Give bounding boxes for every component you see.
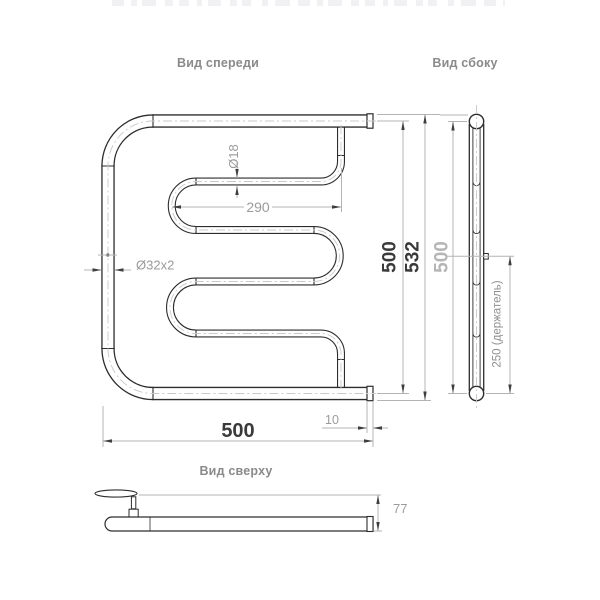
top-view-label: Вид сверху xyxy=(199,464,272,478)
drawing-page: Ø18 290 Ø32x2 500 10 500 532 500 250 (де… xyxy=(0,0,600,600)
dim-pipe-diameter-small: Ø18 xyxy=(226,144,241,169)
front-view-label: Вид спереди xyxy=(177,56,259,70)
top-view: 77 xyxy=(95,490,407,532)
dim-depth-from-wall: 77 xyxy=(393,501,407,516)
top-tube-end-cap xyxy=(367,517,373,532)
dim-end-offset: 10 xyxy=(325,413,339,427)
dim-serpentine-width: 290 xyxy=(246,199,270,215)
top-tube-body xyxy=(105,517,373,531)
dim-pipe-diameter-main: Ø32x2 xyxy=(136,258,174,273)
technical-drawing: Ø18 290 Ø32x2 500 10 500 532 500 250 (де… xyxy=(0,0,600,600)
bracket-collar xyxy=(129,509,138,517)
dim-height-overall: 532 xyxy=(403,241,424,273)
front-view: Ø18 290 Ø32x2 500 10 500 532 xyxy=(84,114,440,447)
serpentine-centerline xyxy=(170,125,341,389)
bracket-flange xyxy=(95,490,137,497)
serpentine-pipe-inner xyxy=(170,128,341,388)
dim-height-centers: 500 xyxy=(380,241,401,273)
side-view-label: Вид сбоку xyxy=(432,56,497,70)
serpentine-pipe-outer xyxy=(170,128,341,388)
dim-overall-width: 500 xyxy=(221,420,254,442)
side-view: 500 250 (держатель) xyxy=(432,105,515,410)
dim-holder-offset: 250 (держатель) xyxy=(492,280,504,367)
bracket-stem xyxy=(131,497,135,509)
dim-side-height: 500 xyxy=(432,241,453,273)
